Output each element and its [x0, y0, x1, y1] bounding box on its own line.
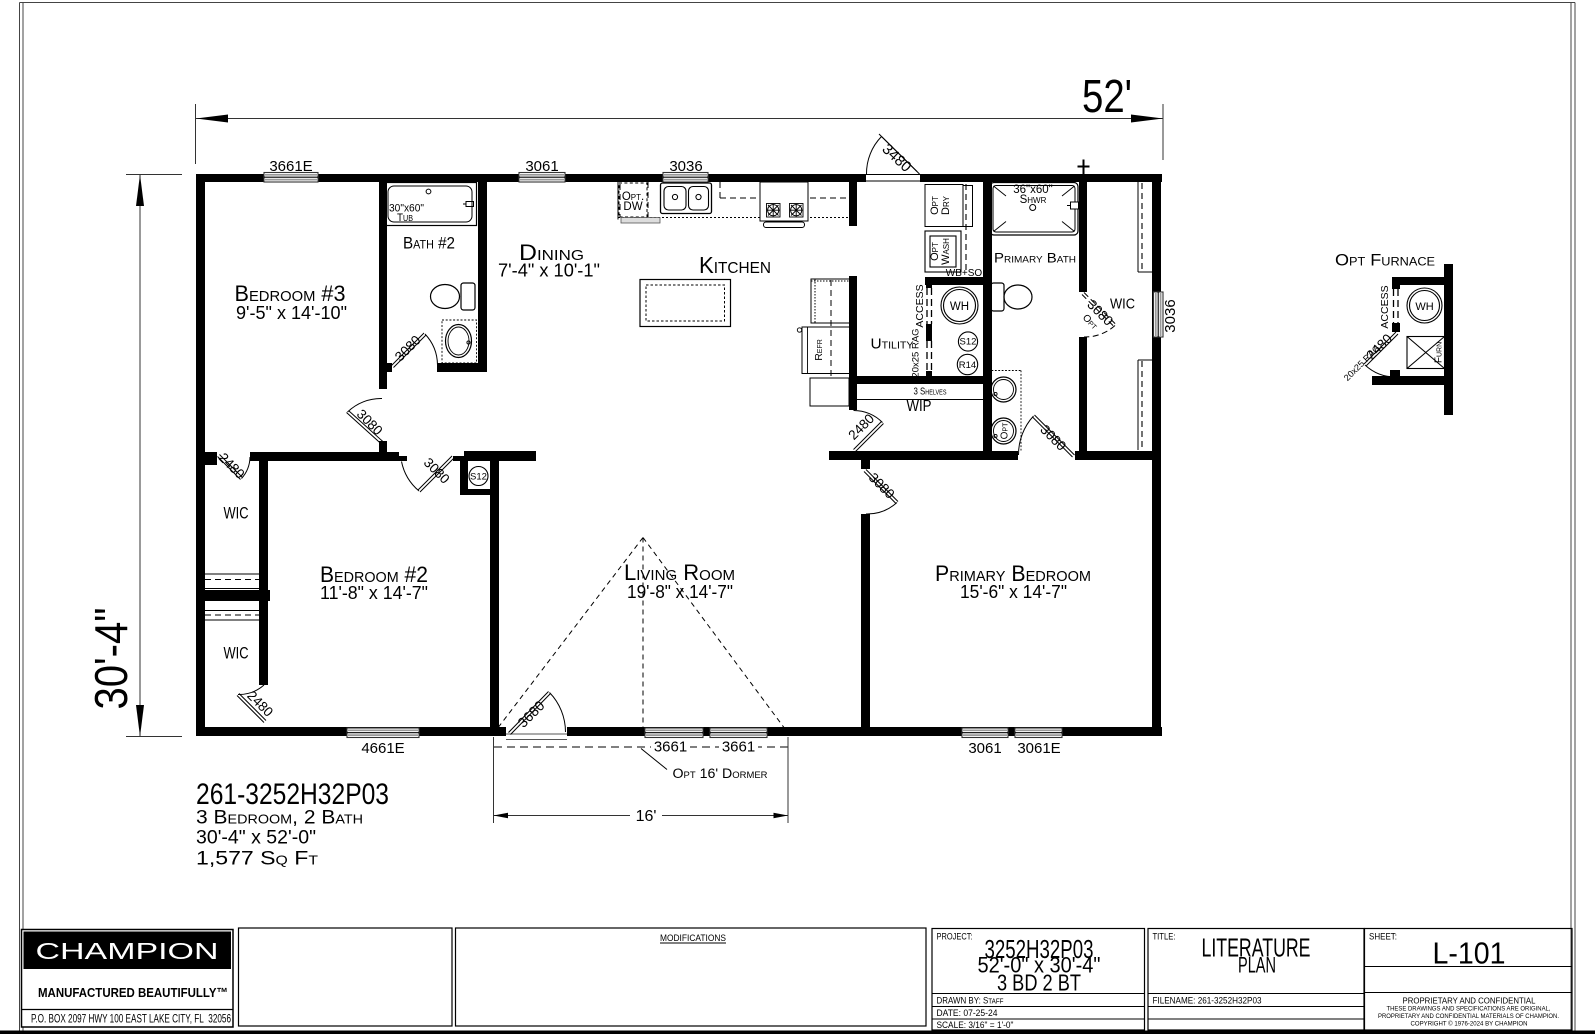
svg-text:ACCESS: ACCESS	[1379, 285, 1391, 328]
svg-text:Opt: Opt	[1000, 422, 1011, 439]
svg-text:3661: 3661	[722, 739, 755, 756]
svg-text:P.O. BOX 2097 HWY 100 EAST LAK: P.O. BOX 2097 HWY 100 EAST LAKE CITY, FL…	[31, 1012, 231, 1026]
svg-text:FILENAME: 261-3252H32P03: FILENAME: 261-3252H32P03	[1153, 996, 1262, 1007]
svg-text:7'-4" x 10'-1": 7'-4" x 10'-1"	[498, 261, 600, 281]
svg-text:30'-4" x 52'-0": 30'-4" x 52'-0"	[196, 828, 316, 849]
svg-text:16': 16'	[636, 808, 657, 825]
svg-text:19'-8" x 14'-7": 19'-8" x 14'-7"	[627, 582, 733, 602]
svg-text:3 Shelves: 3 Shelves	[914, 387, 947, 398]
svg-text:WIC: WIC	[224, 505, 249, 523]
svg-text:3036: 3036	[669, 158, 702, 175]
svg-text:Tub: Tub	[397, 212, 413, 224]
svg-text:4661E: 4661E	[361, 740, 404, 757]
svg-text:11'-8" x 14'-7": 11'-8" x 14'-7"	[320, 583, 428, 603]
svg-text:MANUFACTURED BEAUTIFULLY™: MANUFACTURED BEAUTIFULLY™	[38, 985, 228, 1000]
svg-text:Opt Furnace: Opt Furnace	[1335, 251, 1435, 270]
svg-text:WH: WH	[1415, 301, 1433, 313]
svg-text:THESE DRAWINGS AND SPECIFICATI: THESE DRAWINGS AND SPECIFICATIONS ARE OR…	[1387, 1006, 1551, 1013]
svg-text:R14: R14	[959, 360, 976, 371]
svg-text:Utility: Utility	[871, 337, 914, 353]
svg-text:S12: S12	[960, 337, 977, 348]
svg-text:Bath #2: Bath #2	[403, 234, 455, 253]
svg-text:PROJECT:: PROJECT:	[937, 932, 973, 943]
svg-text:WH: WH	[950, 301, 969, 313]
svg-text:DATE: 07-25-24: DATE: 07-25-24	[937, 1008, 998, 1019]
svg-text:261-3252H32P03: 261-3252H32P03	[196, 778, 389, 811]
svg-text:Kitchen: Kitchen	[699, 252, 771, 278]
svg-text:Refr: Refr	[813, 339, 825, 361]
svg-text:52': 52'	[1082, 70, 1132, 122]
svg-text:COPYRIGHT © 1976-2024 BY CHAMP: COPYRIGHT © 1976-2024 BY CHAMPION	[1411, 1020, 1528, 1028]
svg-text:1,577 Sq Ft: 1,577 Sq Ft	[196, 849, 318, 870]
svg-text:WIC: WIC	[224, 645, 249, 663]
svg-text:TITLE:: TITLE:	[1153, 932, 1176, 943]
svg-text:Primary Bath: Primary Bath	[994, 251, 1076, 266]
svg-text:WB+SO: WB+SO	[946, 268, 983, 279]
svg-text:CHAMPION: CHAMPION	[36, 938, 219, 964]
svg-text:PROPRIETARY AND CONFIDENTIAL M: PROPRIETARY AND CONFIDENTIAL MATERIALS O…	[1378, 1013, 1559, 1020]
svg-text:15'-6" x 14'-7": 15'-6" x 14'-7"	[960, 582, 1067, 602]
svg-text:3661E: 3661E	[269, 158, 312, 175]
svg-text:30'-4": 30'-4"	[85, 608, 137, 710]
svg-text:DRAWN BY: STAFF: DRAWN BY: STAFF	[937, 996, 1004, 1007]
svg-text:3036: 3036	[1162, 299, 1179, 332]
svg-text:SHEET:: SHEET:	[1369, 932, 1397, 943]
svg-text:9'-5" x 14'-10": 9'-5" x 14'-10"	[236, 303, 347, 323]
svg-text:WIC: WIC	[1110, 296, 1135, 313]
svg-text:3 Bedroom, 2 Bath: 3 Bedroom, 2 Bath	[196, 808, 363, 829]
svg-text:S12: S12	[470, 472, 487, 483]
svg-text:Shwr: Shwr	[1020, 194, 1047, 206]
svg-text:PROPRIETARY AND CONFIDENTIAL: PROPRIETARY AND CONFIDENTIAL	[1403, 996, 1536, 1006]
svg-text:Wash: Wash	[940, 238, 952, 265]
svg-text:Dry: Dry	[940, 195, 952, 215]
svg-text:MODIFICATIONS: MODIFICATIONS	[660, 933, 726, 944]
svg-text:WIP: WIP	[907, 398, 932, 415]
svg-text:3061: 3061	[968, 740, 1001, 757]
svg-text:3 BD 2 BT: 3 BD 2 BT	[997, 970, 1081, 996]
svg-text:3061: 3061	[525, 158, 558, 175]
svg-text:Furn: Furn	[1434, 342, 1445, 363]
svg-text:SCALE: 3/16" = 1'-0": SCALE: 3/16" = 1'-0"	[937, 1020, 1014, 1031]
svg-text:3661: 3661	[654, 739, 687, 756]
svg-text:DW: DW	[623, 201, 642, 213]
svg-text:PLAN: PLAN	[1238, 953, 1276, 978]
svg-text:ACCESS: ACCESS	[914, 284, 926, 327]
svg-text:L-101: L-101	[1433, 936, 1506, 971]
svg-text:3061E: 3061E	[1017, 740, 1060, 757]
svg-text:Opt 16' Dormer: Opt 16' Dormer	[673, 766, 769, 781]
